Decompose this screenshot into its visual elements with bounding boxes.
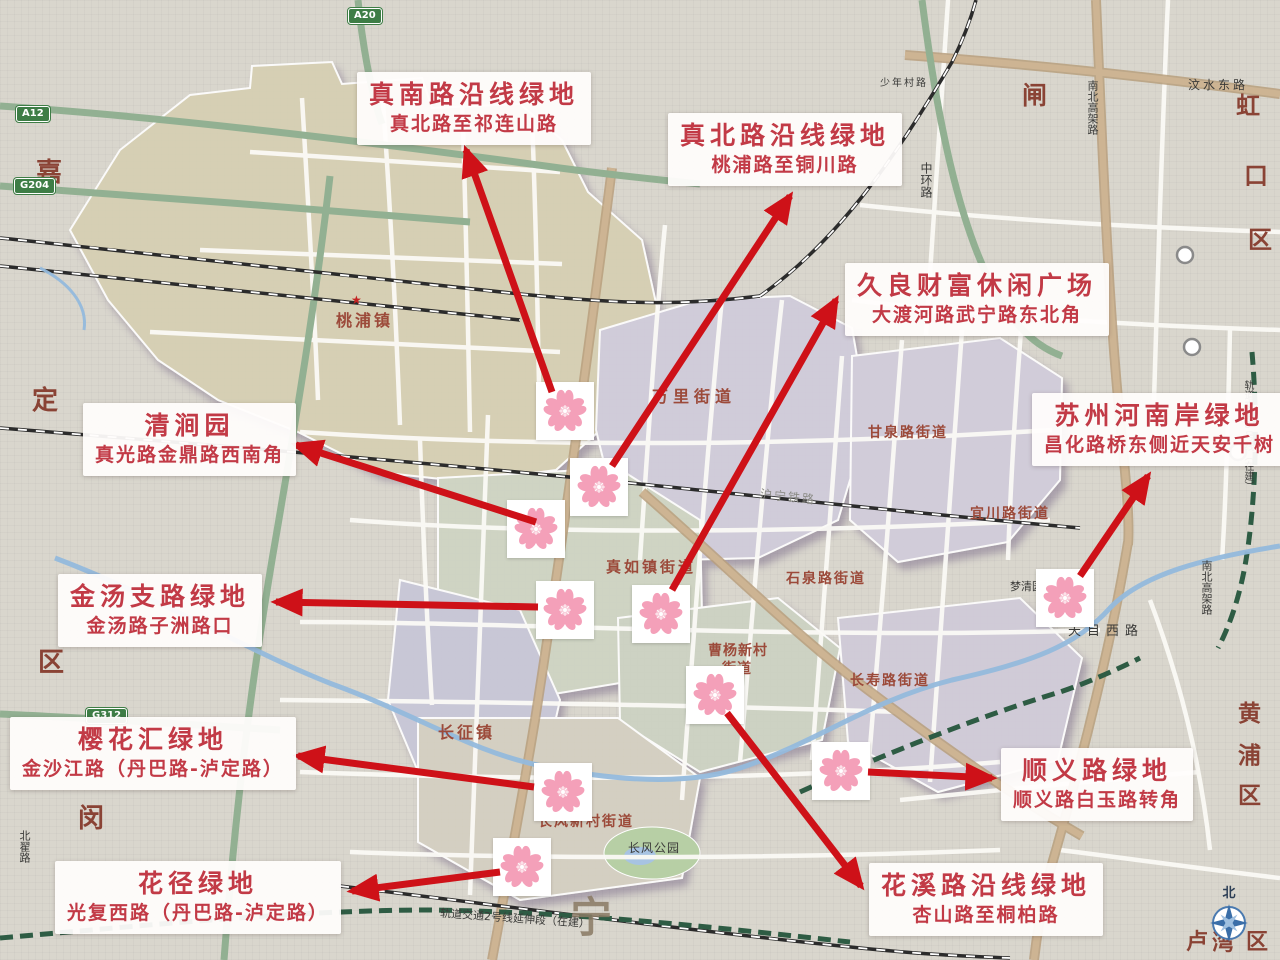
poi-title: 清涧园 [95,410,284,443]
poi-label-shunyi: 顺义路绿地 顺义路白玉路转角 [1001,748,1193,821]
compass-north-label: 北 [1204,882,1254,901]
poi-subtitle: 光复西路（丹巴路-泸定路） [67,901,329,927]
sakura-blossom-icon [534,763,592,821]
poi-label-jintang: 金汤支路绿地 金汤路子洲路口 [58,574,262,647]
poi-subtitle: 金沙江路（丹巴路-泸定路） [22,757,284,783]
poi-title: 金汤支路绿地 [70,581,250,614]
highway-badge: A12 [16,106,50,122]
highway-badge: A20 [348,8,382,24]
poi-label-zhennan: 真南路沿线绿地 真北路至祁连山路 [357,72,591,145]
sakura-blossom-icon [686,666,744,724]
compass-rose: 北 [1204,882,1254,949]
poi-label-suzhouhe: 苏州河南岸绿地 昌化路桥东侧近天安千树 [1032,393,1280,466]
poi-label-huajing: 花径绿地 光复西路（丹巴路-泸定路） [55,861,341,934]
poi-title: 花溪路沿线绿地 [881,870,1091,903]
poi-title: 真南路沿线绿地 [369,79,579,112]
poi-title: 花径绿地 [67,868,329,901]
poi-subtitle: 真北路至祁连山路 [369,112,579,138]
poi-subtitle: 桃浦路至铜川路 [680,153,890,179]
poi-label-qingjian: 清涧园 真光路金鼎路西南角 [83,403,296,476]
poi-title: 顺义路绿地 [1013,755,1181,788]
sakura-blossom-icon [536,581,594,639]
poi-label-jiuliang: 久良财富休闲广场 大渡河路武宁路东北角 [845,263,1109,336]
town-star-icon: ★ [351,293,362,307]
poi-subtitle: 真光路金鼎路西南角 [95,443,284,469]
sakura-blossom-icon [507,500,565,558]
poi-label-zhenbei: 真北路沿线绿地 桃浦路至铜川路 [668,113,902,186]
poi-title: 苏州河南岸绿地 [1044,400,1275,433]
poi-title: 樱花汇绿地 [22,724,284,757]
poi-subtitle: 顺义路白玉路转角 [1013,788,1181,814]
sakura-blossom-icon [632,585,690,643]
poi-subtitle: 昌化路桥东侧近天安千树 [1044,433,1275,459]
poi-title: 久良财富休闲广场 [857,270,1097,303]
poi-subtitle: 金汤路子洲路口 [70,614,250,640]
sakura-blossom-icon [536,382,594,440]
poi-label-yinghuahui: 樱花汇绿地 金沙江路（丹巴路-泸定路） [10,717,296,790]
poi-title: 真北路沿线绿地 [680,120,890,153]
annotated-map: 嘉 定 区 闵 闸 虹 口 区 黄 浦 区 卢 湾 区 宁 ★ 桃浦镇 万里街道… [0,0,1280,960]
sakura-blossom-icon [812,742,870,800]
sakura-blossom-icon [570,458,628,516]
poi-subtitle: 大渡河路武宁路东北角 [857,303,1097,329]
highway-badge: G204 [14,178,55,194]
poi-subtitle: 杏山路至桐柏路 [881,903,1091,929]
sakura-blossom-icon [493,838,551,896]
poi-label-huaxi: 花溪路沿线绿地 杏山路至桐柏路 [869,863,1103,936]
compass-star-icon [1207,901,1251,945]
sakura-blossom-icon [1036,569,1094,627]
